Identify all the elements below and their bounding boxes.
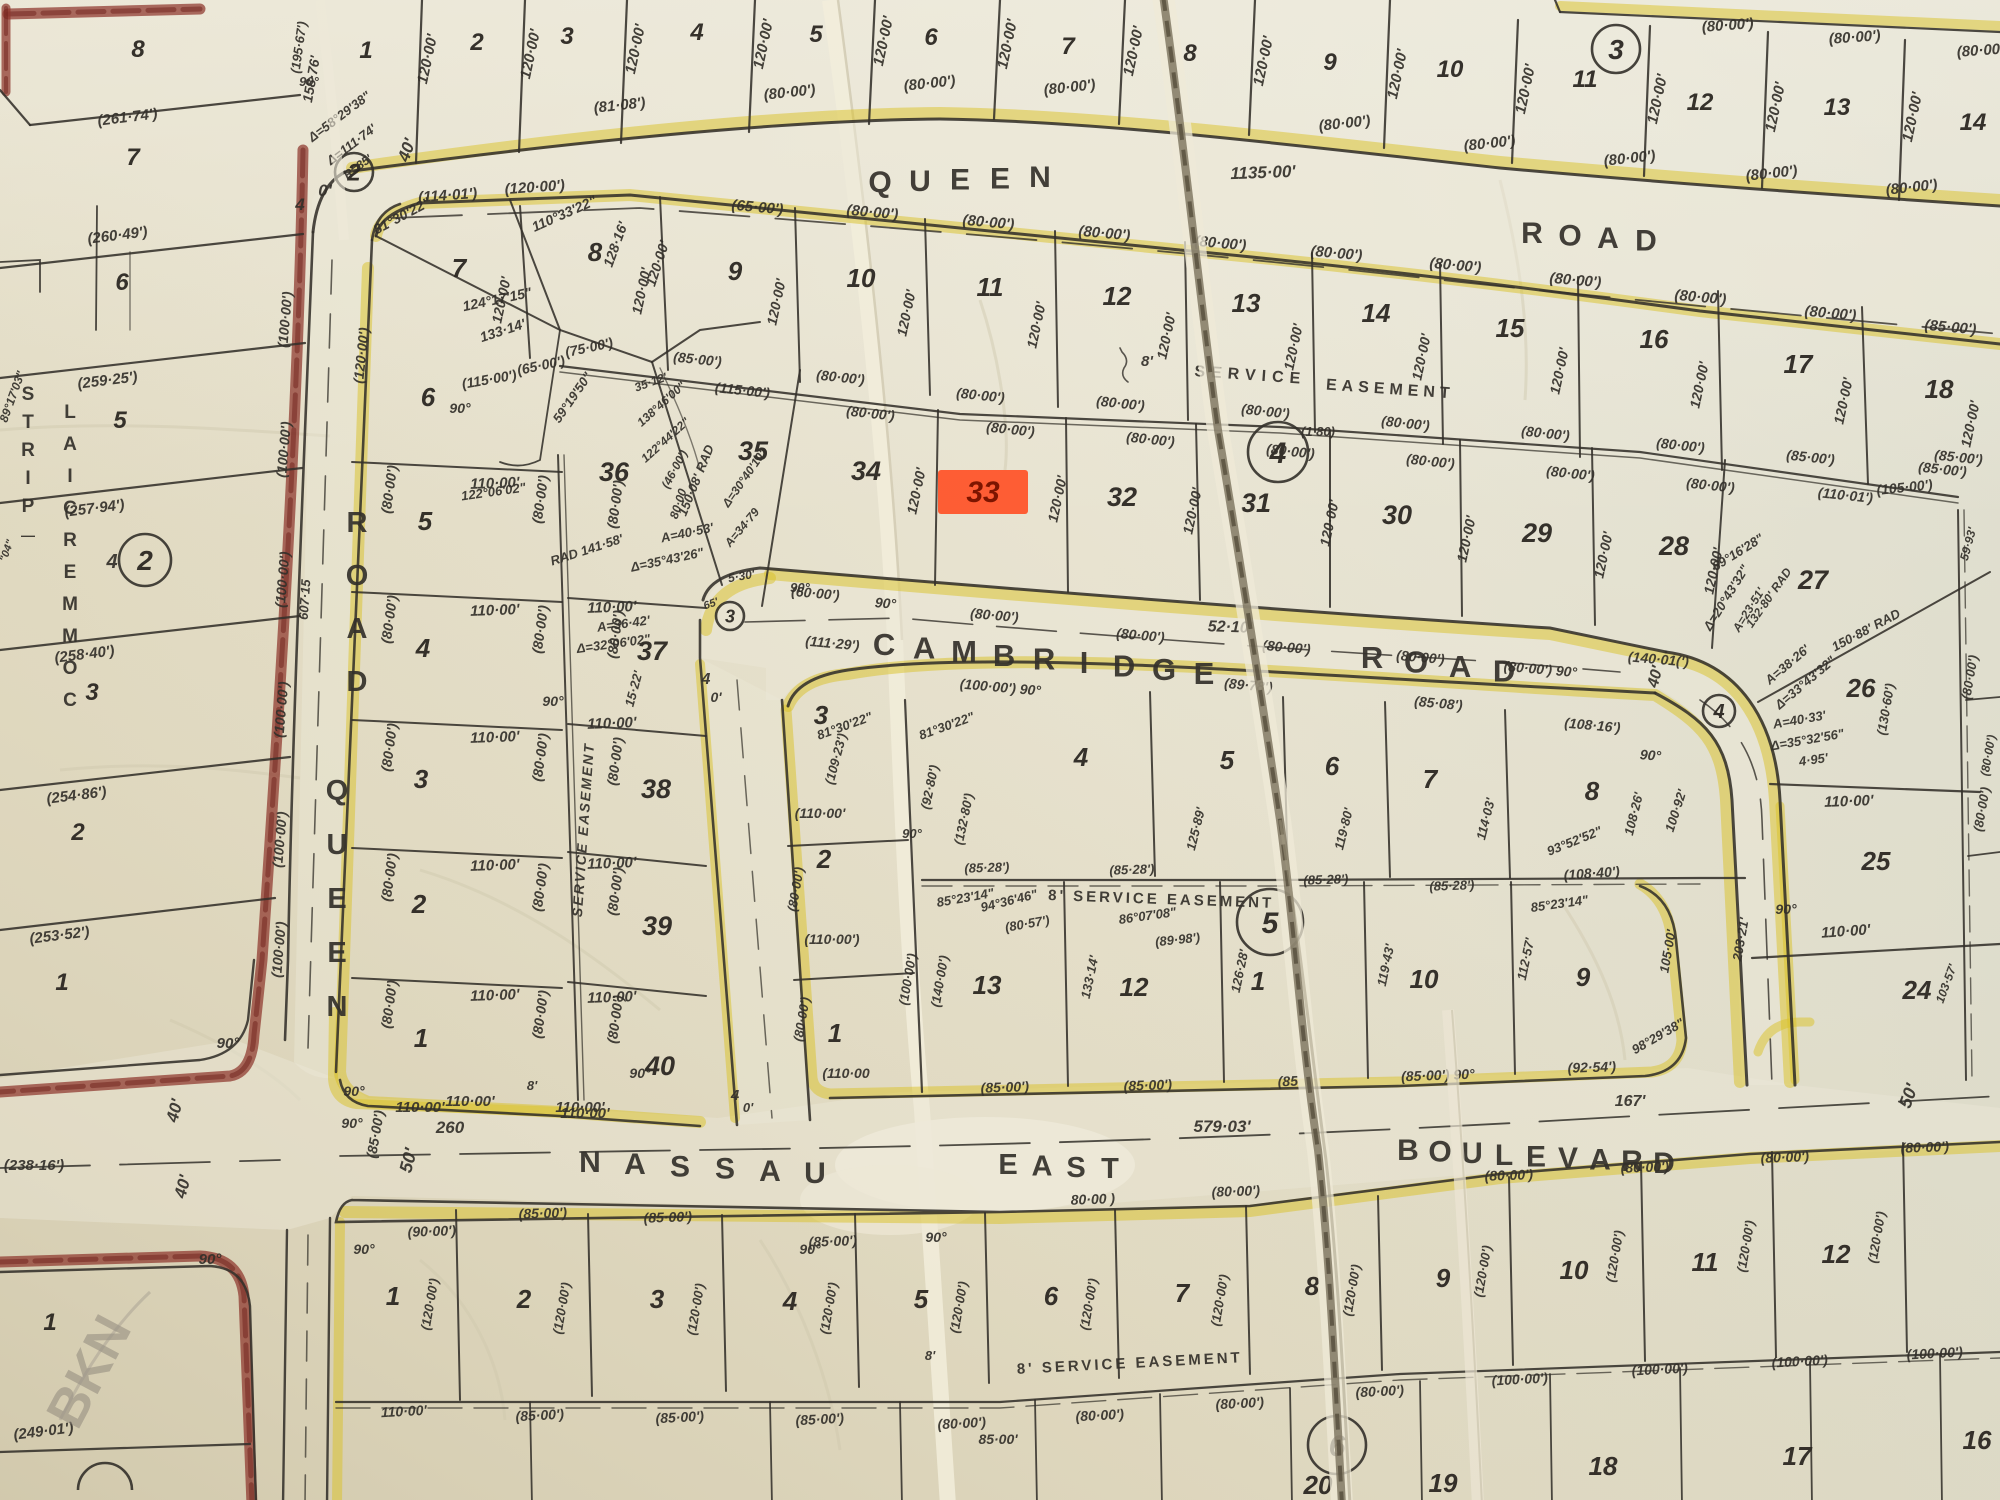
svg-text:E: E — [327, 883, 346, 915]
svg-text:110·00': 110·00' — [587, 714, 637, 733]
svg-text:(80·00'): (80·00') — [1760, 1148, 1809, 1166]
svg-text:(85·00'): (85·00') — [1123, 1076, 1172, 1094]
svg-text:90°: 90° — [902, 826, 922, 841]
svg-text:9: 9 — [1436, 1263, 1451, 1293]
svg-text:13: 13 — [973, 970, 1002, 1000]
svg-text:1: 1 — [1251, 966, 1265, 996]
svg-text:(92·54'): (92·54') — [1567, 1058, 1616, 1076]
svg-text:7: 7 — [1423, 764, 1439, 794]
svg-text:5: 5 — [809, 21, 823, 48]
svg-text:5: 5 — [113, 407, 127, 434]
svg-text:1: 1 — [55, 969, 68, 996]
svg-text:(85·28'): (85·28') — [1109, 861, 1154, 878]
svg-text:(80·00'): (80·00') — [1620, 1158, 1669, 1176]
svg-text:29: 29 — [1521, 518, 1552, 548]
svg-text:6: 6 — [421, 382, 436, 412]
svg-text:90°: 90° — [217, 1035, 241, 1052]
svg-text:6: 6 — [924, 24, 938, 51]
svg-text:M: M — [62, 594, 78, 615]
svg-text:O: O — [1428, 1136, 1451, 1169]
svg-text:Q: Q — [326, 775, 349, 807]
svg-text:6: 6 — [1325, 751, 1340, 781]
svg-text:(80·00'): (80·00') — [1956, 40, 2000, 61]
svg-text:90°: 90° — [1775, 901, 1797, 917]
svg-text:10: 10 — [847, 263, 876, 293]
svg-text:C: C — [63, 498, 77, 519]
svg-text:0': 0' — [710, 689, 722, 705]
svg-text:33: 33 — [966, 476, 1000, 509]
svg-text:C: C — [873, 627, 895, 662]
svg-text:167': 167' — [1615, 1093, 1647, 1110]
svg-text:(80·00'): (80·00') — [1075, 1406, 1125, 1425]
svg-text:(110·00'): (110·00') — [804, 931, 860, 947]
svg-text:(110·00: (110·00 — [822, 1065, 869, 1081]
svg-text:110·00': 110·00' — [560, 1105, 610, 1122]
svg-text:2: 2 — [136, 545, 153, 576]
svg-text:4: 4 — [415, 633, 431, 663]
svg-text:579·03': 579·03' — [1194, 1117, 1252, 1136]
svg-text:2: 2 — [469, 29, 484, 56]
svg-text:P: P — [22, 496, 35, 517]
svg-text:V: V — [1558, 1142, 1578, 1175]
svg-text:110·00': 110·00' — [445, 1093, 495, 1110]
svg-text:O: O — [63, 658, 78, 679]
svg-text:110·00': 110·00' — [1821, 921, 1872, 941]
svg-text:18: 18 — [1925, 374, 1954, 404]
svg-text:110·00': 110·00' — [395, 1099, 445, 1116]
svg-text:9: 9 — [1576, 962, 1591, 992]
svg-text:L: L — [64, 402, 76, 423]
svg-text:110·00': 110·00' — [470, 986, 520, 1005]
svg-text:G: G — [1152, 652, 1176, 687]
svg-text:S: S — [670, 1150, 690, 1183]
svg-text:34: 34 — [851, 456, 881, 486]
svg-text:90°: 90° — [629, 1065, 651, 1081]
svg-text:28: 28 — [1658, 531, 1689, 561]
svg-text:3: 3 — [1608, 34, 1624, 65]
svg-text:110·00': 110·00' — [380, 1402, 427, 1420]
svg-text:(80·00'): (80·00') — [1484, 1166, 1533, 1184]
svg-text:(85·00'): (85·00') — [980, 1078, 1029, 1096]
svg-text:E: E — [327, 937, 346, 969]
svg-text:607·15: 607·15 — [296, 578, 314, 620]
svg-text:9: 9 — [1323, 49, 1337, 76]
svg-text:(80·00'): (80·00') — [1215, 1394, 1265, 1413]
svg-text:U: U — [909, 165, 931, 198]
svg-text:A: A — [347, 613, 368, 645]
svg-text:T: T — [22, 412, 34, 433]
svg-text:18: 18 — [1589, 1451, 1618, 1481]
svg-text:17: 17 — [1783, 1441, 1813, 1471]
svg-text:13: 13 — [1824, 94, 1851, 121]
svg-text:(80·00'): (80·00') — [1900, 1138, 1949, 1156]
svg-text:M: M — [62, 626, 78, 647]
svg-text:11: 11 — [1573, 66, 1598, 93]
svg-text:(100·00'): (100·00') — [1491, 1370, 1548, 1389]
svg-text:8: 8 — [1585, 776, 1600, 806]
svg-text:(85: (85 — [1277, 1073, 1298, 1090]
svg-text:(85·28'): (85·28') — [1429, 877, 1474, 894]
svg-text:90°: 90° — [343, 1083, 365, 1099]
svg-text:A: A — [1589, 1144, 1611, 1177]
svg-text:I: I — [25, 468, 30, 489]
svg-text:90°: 90° — [1639, 746, 1662, 764]
svg-text:N: N — [1029, 161, 1051, 194]
svg-text:5: 5 — [914, 1284, 929, 1314]
svg-text:(110·00': (110·00' — [795, 805, 846, 821]
svg-text:10: 10 — [1410, 964, 1439, 994]
svg-text:3: 3 — [560, 23, 574, 50]
svg-text:4: 4 — [105, 551, 117, 573]
svg-text:(80·00'): (80·00') — [1828, 27, 1881, 48]
svg-text:4: 4 — [701, 671, 711, 688]
svg-text:R: R — [21, 440, 35, 461]
svg-text:(1 80): (1 80) — [1301, 424, 1335, 439]
svg-text:4: 4 — [782, 1286, 798, 1316]
svg-text:90°: 90° — [353, 1241, 375, 1257]
svg-text:(85·00'): (85·00') — [643, 1208, 692, 1226]
svg-text:A: A — [913, 631, 935, 666]
svg-text:12: 12 — [1120, 972, 1149, 1002]
svg-text:16: 16 — [1963, 1425, 1992, 1455]
svg-text:B: B — [1397, 1134, 1419, 1167]
svg-text:(85·00'): (85·00') — [518, 1204, 567, 1222]
svg-text:D: D — [1635, 225, 1657, 258]
svg-text:A: A — [63, 434, 77, 455]
svg-text:(80·00'): (80·00') — [1211, 1182, 1260, 1200]
svg-text:14: 14 — [1960, 109, 1987, 136]
svg-text:90°: 90° — [799, 1241, 821, 1257]
svg-text:1: 1 — [414, 1023, 428, 1053]
svg-text:110·00': 110·00' — [470, 601, 520, 620]
svg-text:E: E — [64, 562, 77, 583]
svg-text:39: 39 — [642, 911, 672, 941]
svg-text:E: E — [998, 1149, 1017, 1181]
svg-text:(90·00'): (90·00') — [407, 1222, 456, 1240]
svg-text:A: A — [1032, 1150, 1053, 1182]
svg-text:8': 8' — [925, 1348, 936, 1363]
svg-text:110·00': 110·00' — [470, 856, 520, 875]
svg-text:(85·28'): (85·28') — [1303, 871, 1348, 888]
svg-text:R: R — [1033, 641, 1055, 676]
svg-text:14: 14 — [1362, 298, 1391, 328]
svg-text:90°: 90° — [299, 74, 319, 89]
svg-text:A: A — [759, 1155, 781, 1188]
svg-text:3: 3 — [650, 1284, 665, 1314]
svg-text:11: 11 — [1692, 1247, 1719, 1277]
svg-text:6: 6 — [1044, 1281, 1059, 1311]
svg-text:2: 2 — [816, 844, 832, 874]
svg-text:1135·00': 1135·00' — [1230, 162, 1297, 183]
svg-text:38: 38 — [641, 774, 671, 804]
svg-text:E: E — [1194, 656, 1215, 691]
svg-text:S: S — [1066, 1152, 1085, 1184]
svg-text:90°: 90° — [199, 1251, 223, 1268]
svg-text:13: 13 — [1232, 288, 1261, 318]
svg-text:8': 8' — [527, 1078, 538, 1093]
svg-text:8': 8' — [1141, 353, 1153, 370]
svg-text:R: R — [63, 530, 77, 551]
svg-text:R: R — [347, 507, 368, 539]
svg-text:N: N — [327, 991, 348, 1023]
svg-text:(85·28'): (85·28') — [964, 859, 1009, 876]
svg-text:3: 3 — [725, 606, 735, 626]
svg-text:A: A — [624, 1148, 646, 1181]
svg-text:B: B — [993, 638, 1015, 673]
svg-text:4: 4 — [1712, 701, 1724, 723]
svg-text:4: 4 — [294, 195, 305, 214]
svg-text:1: 1 — [359, 37, 372, 64]
svg-text:(238·16'): (238·16') — [4, 1157, 64, 1174]
svg-text:I: I — [1080, 645, 1089, 680]
svg-text:26: 26 — [1846, 673, 1876, 703]
svg-text:7: 7 — [452, 253, 468, 283]
svg-text:(80·00'): (80·00') — [1355, 1382, 1405, 1401]
svg-text:11: 11 — [977, 272, 1004, 302]
svg-text:7: 7 — [126, 144, 141, 171]
svg-text:S: S — [715, 1153, 735, 1186]
svg-text:E: E — [990, 162, 1010, 195]
svg-text:7: 7 — [1061, 33, 1076, 60]
svg-text:U: U — [327, 829, 348, 861]
svg-text:32: 32 — [1107, 482, 1137, 512]
svg-text:5: 5 — [418, 506, 433, 536]
svg-text:7: 7 — [1175, 1278, 1191, 1308]
svg-text:3: 3 — [85, 679, 99, 706]
svg-text:3: 3 — [414, 764, 429, 794]
svg-text:90°: 90° — [542, 693, 564, 709]
svg-text:4: 4 — [689, 19, 703, 46]
svg-text:17: 17 — [1784, 349, 1814, 379]
svg-text:12: 12 — [1103, 281, 1132, 311]
svg-text:110·00': 110·00' — [470, 728, 520, 747]
svg-text:20: 20 — [1303, 1470, 1333, 1500]
svg-text:110·00': 110·00' — [1824, 792, 1874, 811]
svg-text:T: T — [1101, 1153, 1119, 1185]
svg-text:(80·00'): (80·00') — [937, 1414, 987, 1433]
svg-text:C: C — [63, 690, 77, 711]
svg-text:Q: Q — [868, 166, 891, 199]
svg-text:8: 8 — [1305, 1271, 1320, 1301]
svg-text:27: 27 — [1797, 565, 1830, 595]
svg-text:(80·00'): (80·00') — [1701, 15, 1754, 36]
svg-text:O: O — [346, 560, 369, 592]
svg-text:1: 1 — [43, 1309, 56, 1336]
svg-text:A: A — [1597, 222, 1619, 255]
svg-text:S: S — [22, 384, 35, 405]
svg-text:M: M — [951, 634, 977, 669]
svg-text:4: 4 — [730, 1087, 740, 1104]
svg-text:2: 2 — [516, 1284, 532, 1314]
svg-text:80·00 ): 80·00 ) — [1070, 1190, 1115, 1208]
svg-text:(100·00'): (100·00') — [1771, 1352, 1828, 1371]
svg-text:25: 25 — [1861, 846, 1891, 876]
svg-text:D: D — [1113, 649, 1135, 684]
svg-text:2: 2 — [411, 889, 427, 919]
svg-text:8: 8 — [1183, 40, 1197, 67]
svg-text:8: 8 — [131, 36, 145, 63]
svg-text:19: 19 — [1429, 1468, 1458, 1498]
svg-text:1: 1 — [828, 1018, 842, 1048]
svg-text:6: 6 — [115, 269, 129, 296]
svg-text:(100·00'): (100·00') — [1906, 1344, 1963, 1363]
svg-text:15: 15 — [1496, 313, 1525, 343]
svg-text:16: 16 — [1640, 324, 1669, 354]
svg-text:0': 0' — [743, 1100, 754, 1115]
svg-text:(85·00'): (85·00') — [515, 1406, 565, 1425]
svg-text:10: 10 — [1437, 56, 1464, 83]
svg-text:D: D — [347, 666, 368, 698]
svg-text:24: 24 — [1902, 975, 1932, 1005]
svg-text:R: R — [1521, 217, 1543, 250]
svg-text:(85·00'): (85·00') — [795, 1410, 845, 1429]
svg-text:9: 9 — [728, 256, 743, 286]
svg-text:4: 4 — [1073, 742, 1089, 772]
svg-text:U: U — [804, 1157, 826, 1190]
svg-text:30: 30 — [1382, 500, 1412, 530]
svg-text:90°: 90° — [449, 400, 471, 416]
svg-text:1: 1 — [386, 1281, 400, 1311]
svg-text:90°: 90° — [925, 1229, 947, 1245]
svg-text:R: R — [1361, 640, 1383, 675]
svg-text:(85·00') 90°: (85·00') 90° — [1401, 1066, 1475, 1085]
svg-text:O: O — [1558, 220, 1581, 253]
svg-text:31: 31 — [1241, 488, 1271, 518]
svg-text:12: 12 — [1687, 89, 1714, 116]
svg-text:2: 2 — [70, 819, 85, 846]
svg-text:110·00': 110·00' — [470, 474, 520, 493]
svg-text:5: 5 — [1220, 745, 1235, 775]
svg-text:90°: 90° — [874, 594, 897, 612]
svg-text:0': 0' — [318, 181, 332, 200]
svg-text:12: 12 — [1822, 1239, 1851, 1269]
svg-text:85·00': 85·00' — [978, 1431, 1018, 1447]
svg-text:N: N — [579, 1146, 601, 1179]
svg-text:A: A — [1449, 649, 1471, 684]
svg-text:260: 260 — [435, 1118, 465, 1137]
svg-text:—: — — [21, 527, 35, 543]
svg-text:(85·00'): (85·00') — [655, 1408, 705, 1427]
svg-text:90°: 90° — [341, 1115, 363, 1131]
svg-text:E: E — [950, 164, 970, 197]
svg-text:(100·00'): (100·00') — [1631, 1360, 1688, 1379]
svg-text:10: 10 — [1560, 1255, 1589, 1285]
svg-text:I: I — [67, 466, 72, 487]
